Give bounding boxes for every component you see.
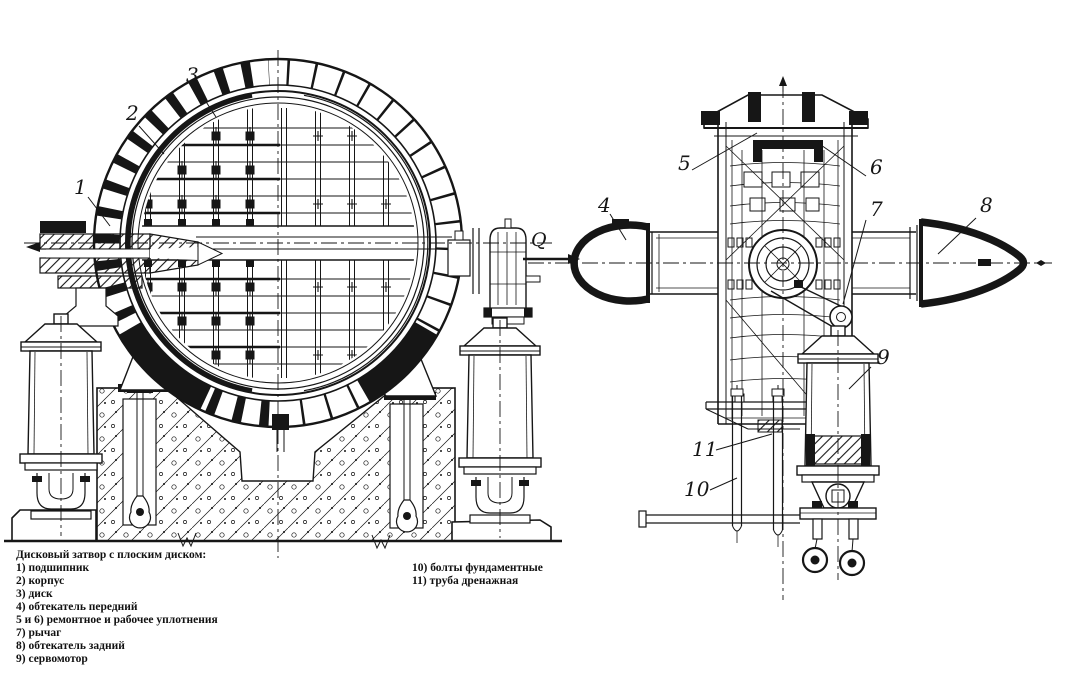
centerlines-side [528, 82, 1052, 600]
callout-3: 3 [186, 63, 199, 87]
parts-legend: Дисковый затвор с плоским диском: 1) под… [16, 549, 218, 666]
flow-direction: Q [523, 229, 580, 264]
front-view [4, 50, 562, 558]
legend-item: 11) труба дренажная [412, 575, 543, 588]
seal-bracket [753, 140, 823, 162]
callout-8: 8 [980, 193, 993, 217]
front-fairing [574, 219, 648, 303]
support-bracket [706, 394, 812, 432]
callout-9: 9 [877, 345, 890, 369]
legend-item: 4) обтекатель передний [16, 601, 218, 614]
callout-5: 5 [678, 151, 691, 175]
trunnion-assembly [448, 219, 540, 324]
legend-item: 7) рычаг [16, 627, 218, 640]
legend-item: 5 и 6) ремонтное и рабочее уплотнения [16, 614, 218, 627]
legend-item: 2) корпус [16, 575, 218, 588]
callout-4: 4 [597, 193, 611, 217]
legend-item: 10) болты фундаментные [412, 562, 543, 575]
callout-7: 7 [870, 197, 883, 221]
servomotor-side-lower [639, 434, 876, 575]
legend-item: 8) обтекатель задний [16, 640, 218, 653]
callout-2: 2 [125, 101, 139, 125]
flow-label: Q [531, 229, 547, 251]
callout-10: 10 [684, 477, 710, 501]
parts-legend-col2: 10) болты фундаментные 11) труба дренажн… [412, 562, 543, 588]
valve-technical-drawing-page: Q [0, 0, 1069, 694]
legend-item: 3) диск [16, 588, 218, 601]
callout-1: 1 [74, 175, 87, 199]
legend-item: 1) подшипник [16, 562, 218, 575]
anchor-bolt-right [390, 384, 423, 532]
legend-item: 9) сервомотор [16, 653, 218, 666]
legend-title: Дисковый затвор с плоским диском: [16, 549, 218, 562]
callout-6: 6 [870, 155, 883, 179]
bottom-drain-boss [272, 414, 289, 430]
anchor-bolt-left [123, 378, 156, 528]
callout-11: 11 [692, 437, 717, 461]
side-view: Q [523, 76, 1052, 600]
